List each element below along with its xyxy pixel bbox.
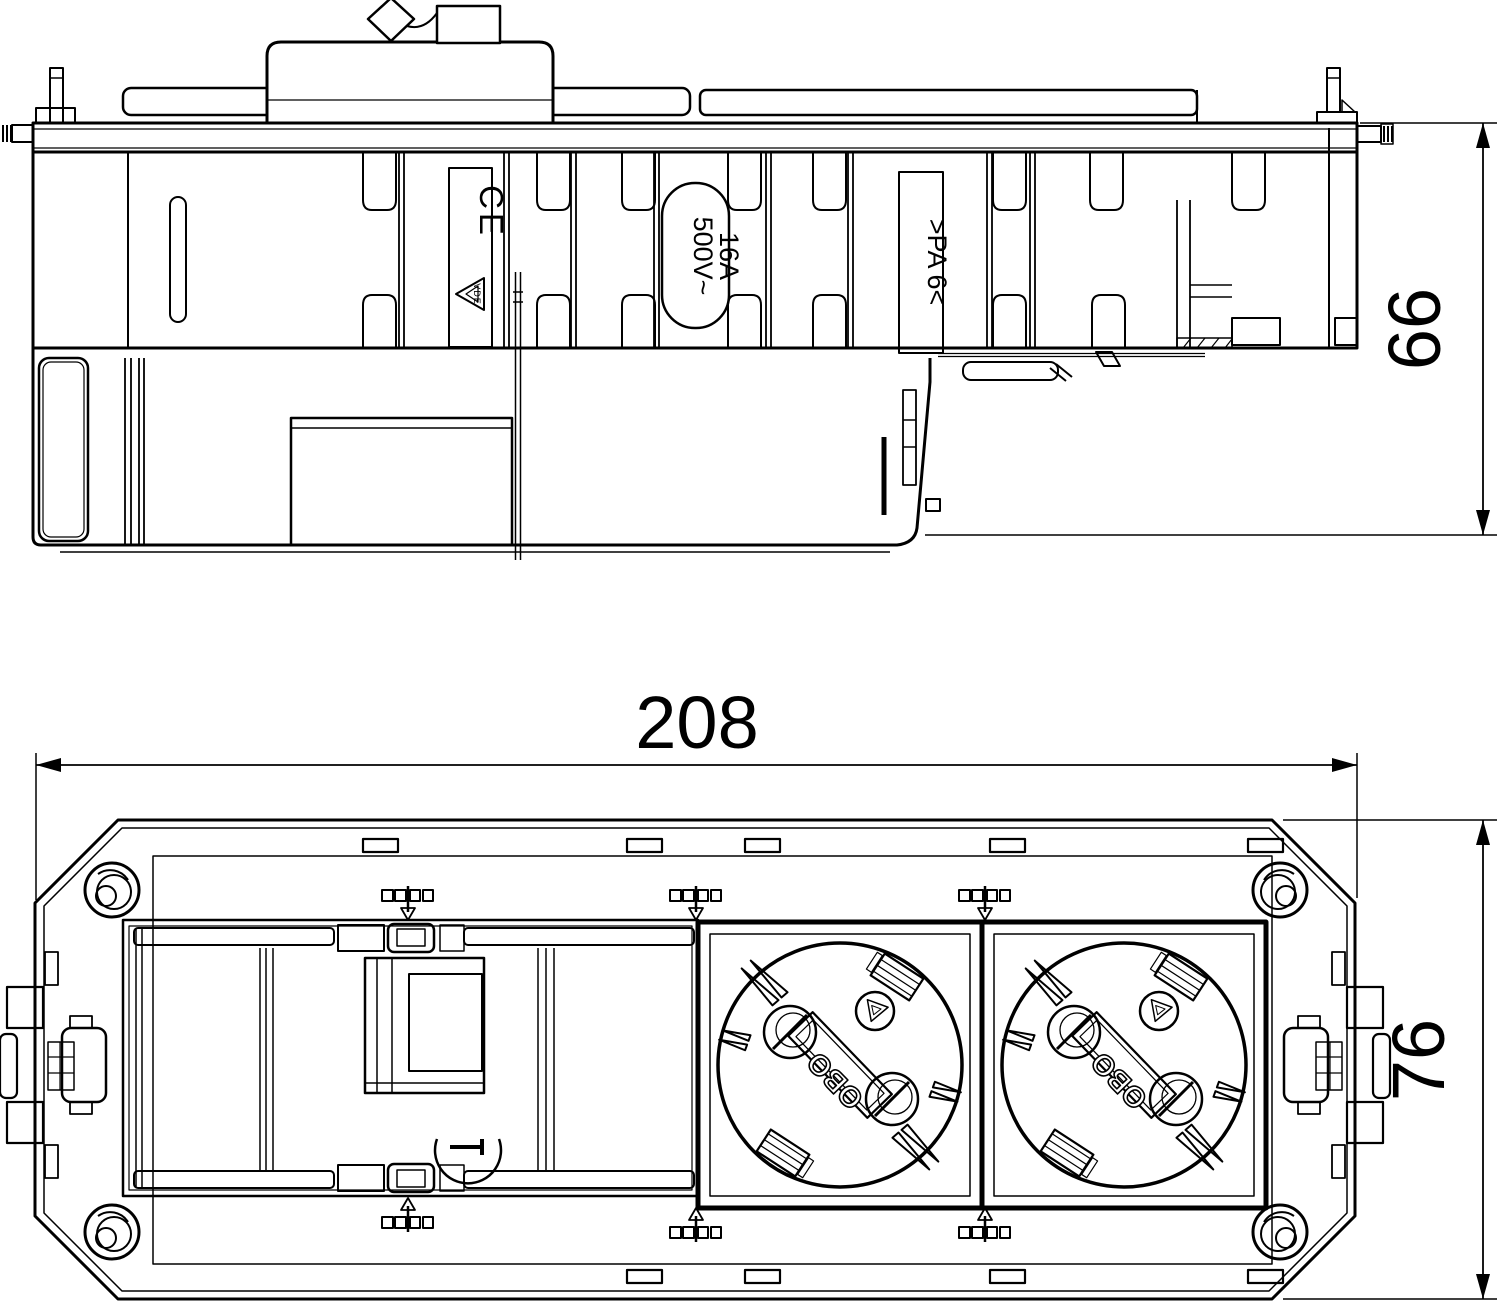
rating-current: 16A	[714, 232, 744, 280]
material-code: >PA 6<	[922, 219, 952, 306]
corner-screw-icon	[1253, 1205, 1307, 1259]
rating-voltage: 500V~	[688, 217, 718, 296]
front-plan-view: OBO OBO	[0, 820, 1390, 1299]
clip-marker	[382, 886, 433, 920]
side-elevation-view: CE VDE 500V~ 16A >PA 6<	[3, 0, 1393, 560]
side-latch-left	[0, 952, 106, 1178]
vde-triangle-icon: VDE	[456, 278, 484, 310]
dimension-height: 76	[1283, 820, 1497, 1299]
ce-mark-icon: CE	[473, 185, 510, 239]
clip-marker	[670, 1208, 721, 1242]
upper-body	[33, 128, 1357, 560]
module-clip	[388, 1164, 434, 1192]
mounting-pin-left	[36, 68, 75, 123]
wire-pin	[513, 272, 523, 560]
dimension-depth-value: 66	[1373, 288, 1456, 370]
dimension-depth: 66	[925, 123, 1497, 535]
corner-screw-icon	[85, 1205, 139, 1259]
corner-screw-icon	[1253, 863, 1307, 917]
svg-text:VDE: VDE	[472, 283, 482, 305]
lower-body	[33, 348, 1205, 552]
dimension-width-value: 208	[635, 681, 758, 764]
clip-marker	[959, 1208, 1010, 1242]
blank-module-window	[365, 958, 484, 1093]
module-clip	[388, 924, 434, 952]
clip-marker	[382, 1198, 433, 1232]
side-screw-right	[1357, 124, 1393, 144]
brand-text-socket-2: OBO	[1085, 1045, 1154, 1115]
top-cover-assembly	[123, 0, 1197, 123]
approval-label: CE VDE	[449, 168, 510, 347]
drawing-sheet: CE VDE 500V~ 16A >PA 6<	[0, 0, 1500, 1312]
corner-screw-icon	[85, 863, 139, 917]
technical-drawing-svg: CE VDE 500V~ 16A >PA 6<	[0, 0, 1500, 1312]
brand-text-socket-1: OBO	[801, 1045, 870, 1115]
side-latch-right	[1284, 952, 1390, 1178]
rating-label: 500V~ 16A	[662, 183, 744, 328]
mounting-pin-right	[1317, 68, 1357, 123]
side-screw-left	[3, 125, 33, 142]
latch-spring	[963, 362, 1058, 380]
material-label: >PA 6<	[899, 172, 952, 353]
clip-marker	[959, 886, 1010, 920]
clip-marker	[670, 886, 721, 920]
data-module-bay	[123, 920, 698, 1196]
terminal-label-area	[291, 418, 512, 545]
lever-knob	[437, 6, 500, 43]
tool-mark-icon	[435, 1139, 501, 1183]
lever-handle	[368, 0, 414, 41]
dimension-height-value: 76	[1377, 1019, 1460, 1101]
dimension-width: 208	[36, 681, 1357, 900]
flange	[33, 123, 1357, 152]
